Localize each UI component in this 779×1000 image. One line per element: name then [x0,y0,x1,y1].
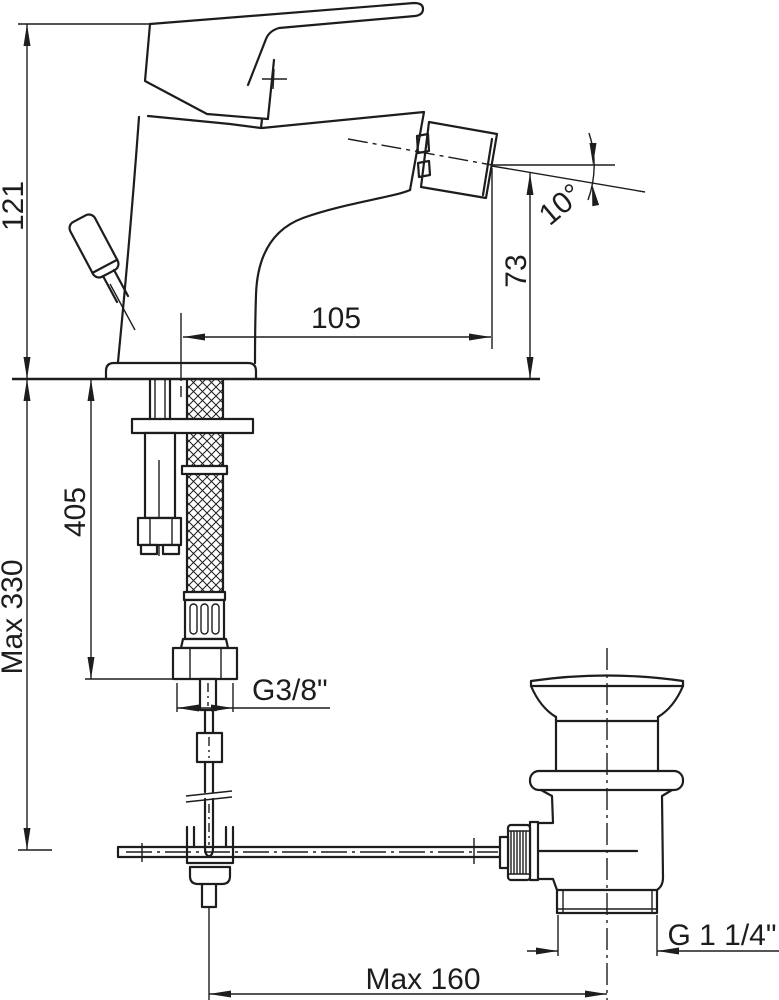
spout-axis-centerline [348,139,492,165]
side-diverter-knob [67,212,135,330]
dim-105: 105 [183,168,492,349]
handle-cross-mark [262,69,287,89]
dim-label-105: 105 [311,302,361,335]
pop-up-rod-horizontal [118,838,500,864]
drain-assembly [500,648,683,1000]
mixer-body [67,3,497,397]
aerator-spout [348,122,497,198]
spout-arm [262,112,424,190]
dim-121: 121 [0,24,152,379]
rod-break-symbol [186,791,232,802]
adjuster-knob [500,822,538,880]
dim-g114: G 1 1/4" [527,915,779,956]
faucet-technical-drawing: 121 Max 330 405 105 73 10° [0,0,779,1000]
dim-label-angle: 10° [533,177,589,231]
dim-max-160: Max 160 [209,963,607,998]
hose-hex-nut [173,648,237,679]
dim-max-330: Max 330 [0,379,52,850]
body-left-edge [118,117,139,362]
supply-hose [182,379,227,592]
dim-label-73: 73 [500,254,533,287]
dim-angle-10: 10° [492,133,645,232]
mounting-nut [138,518,181,545]
dim-label-121: 121 [0,181,30,231]
dim-label-max-330: Max 330 [0,559,29,674]
dim-label-max-160: Max 160 [365,963,480,996]
pop-up-rod-vertical [186,679,233,1000]
hose-connector-nut [173,592,237,679]
hose-clamp [182,466,227,474]
dim-73: 73 [500,173,534,379]
dim-label-g38: G3/8" [252,674,328,707]
dim-label-405: 405 [59,487,92,537]
handle-lever [150,3,423,118]
mounting-bracket-plate [132,419,253,433]
cartridge-dome [145,24,268,119]
dim-label-g114: G 1 1/4" [667,919,776,952]
